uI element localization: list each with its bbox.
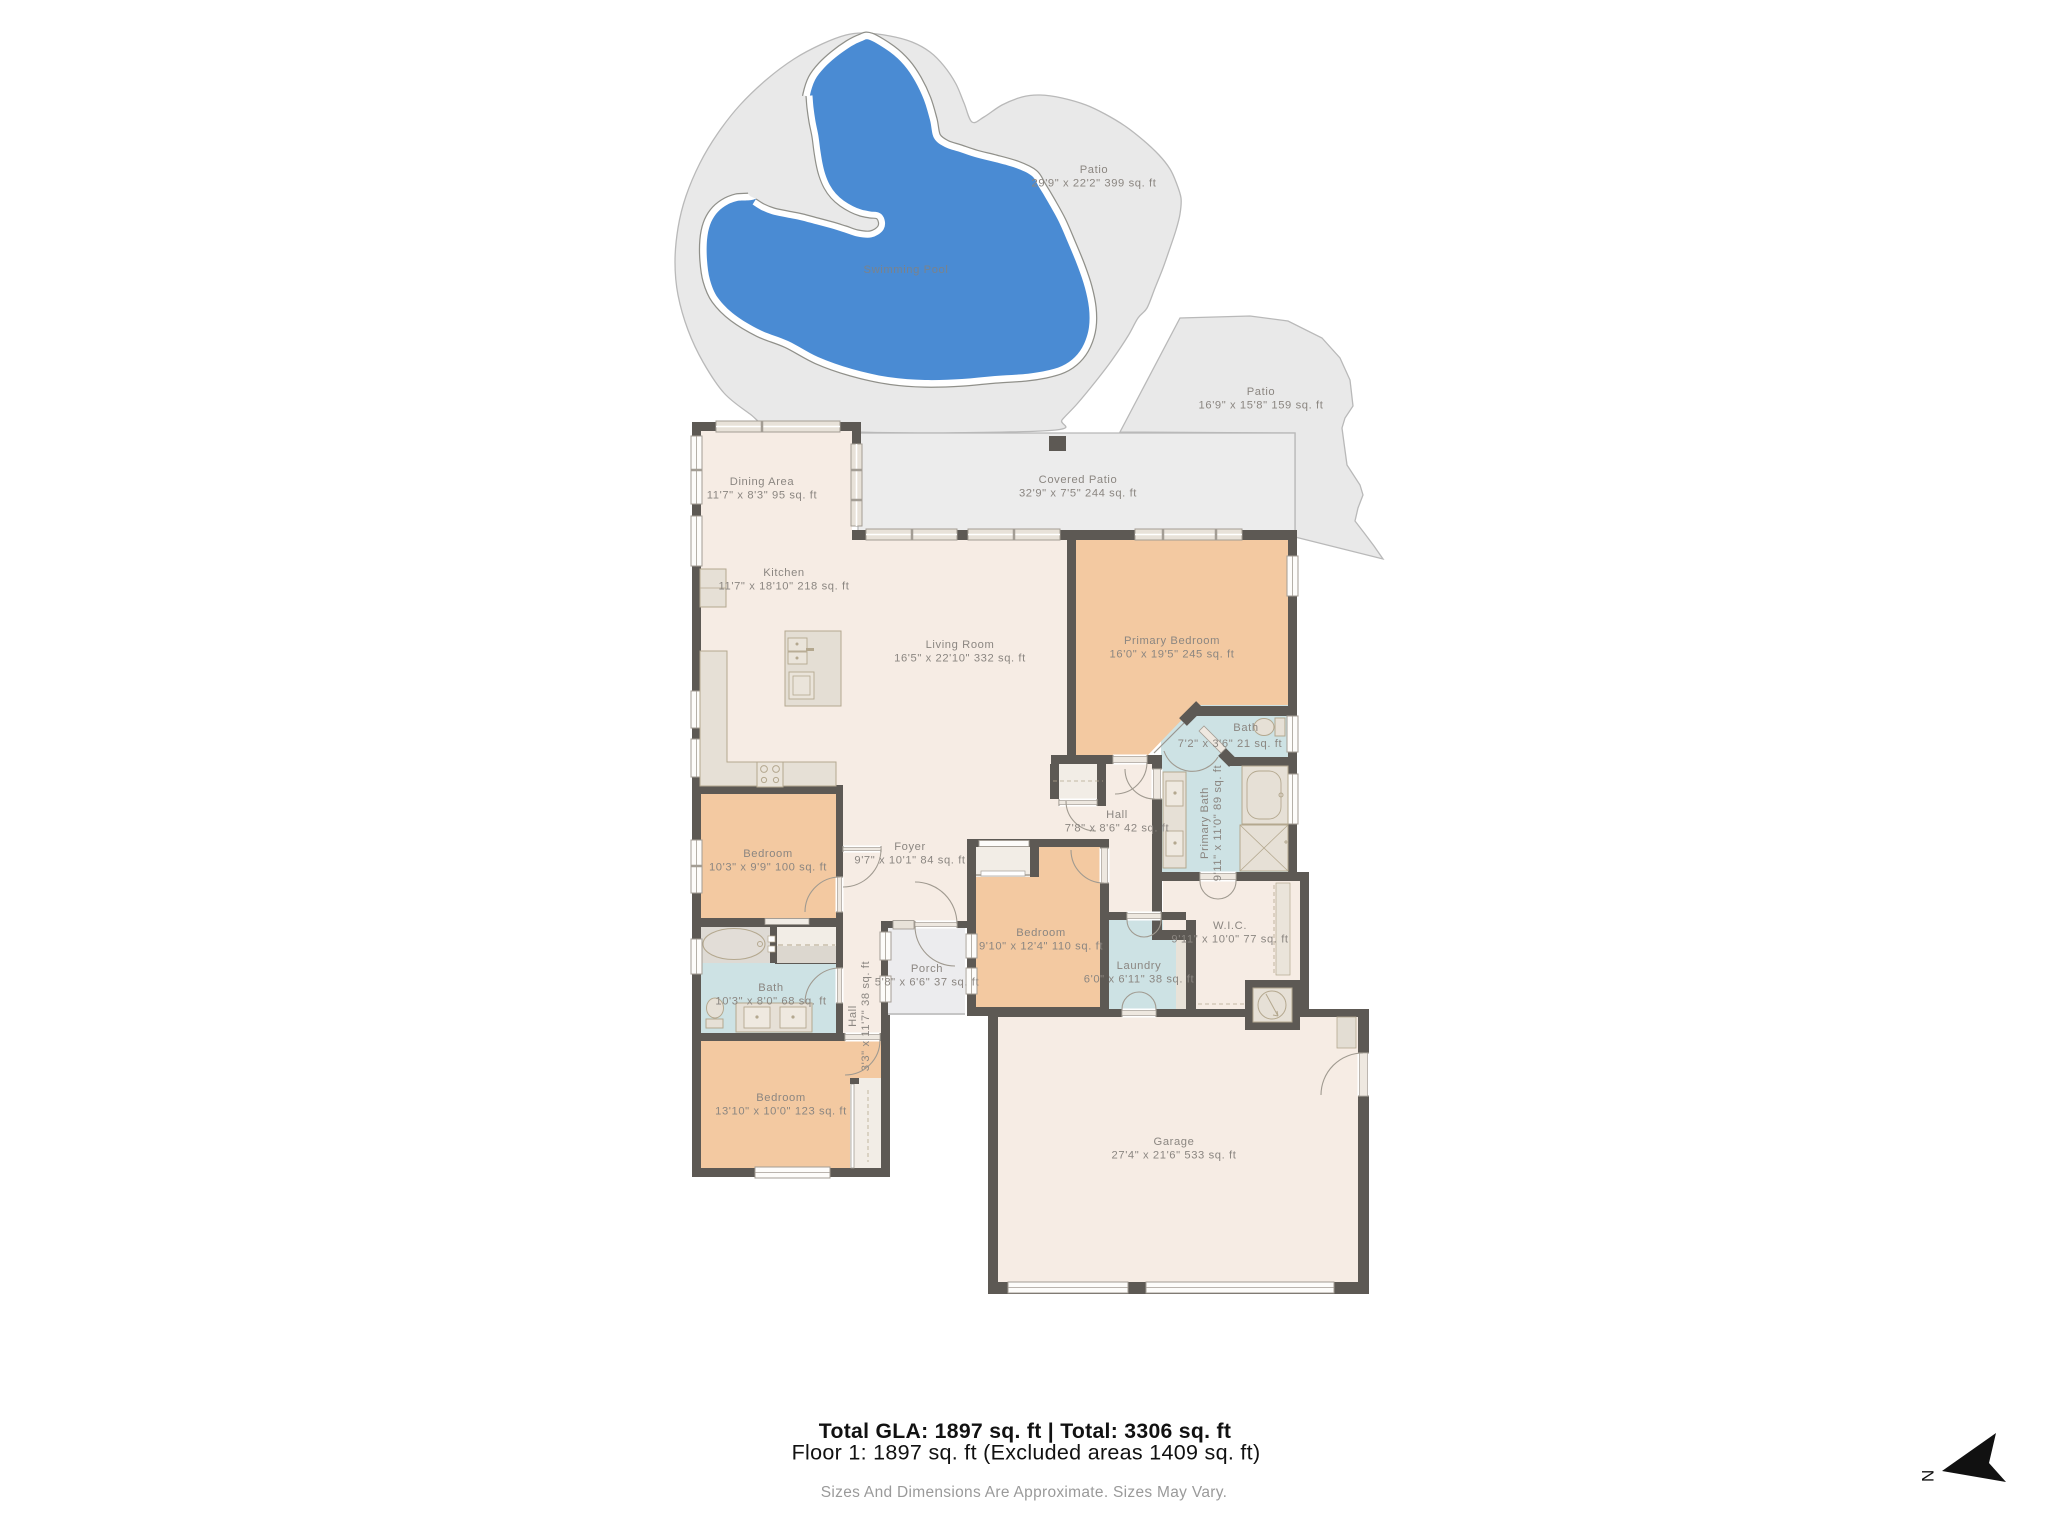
svg-text:Bath: Bath xyxy=(758,982,783,994)
svg-text:Dining Area: Dining Area xyxy=(730,476,795,488)
svg-text:Bedroom: Bedroom xyxy=(1016,927,1066,939)
svg-text:7'8" x 8'6" 42 sq. ft: 7'8" x 8'6" 42 sq. ft xyxy=(1065,823,1170,835)
svg-text:Patio: Patio xyxy=(1247,386,1276,398)
svg-text:27'4" x 21'6" 533 sq. ft: 27'4" x 21'6" 533 sq. ft xyxy=(1112,1150,1237,1162)
svg-text:13'10" x 10'0" 123 sq. ft: 13'10" x 10'0" 123 sq. ft xyxy=(715,1106,847,1118)
svg-text:10'3" x 8'0" 68 sq. ft: 10'3" x 8'0" 68 sq. ft xyxy=(715,996,827,1008)
svg-text:Swimming Pool: Swimming Pool xyxy=(864,264,949,276)
svg-text:11'7" x 18'10" 218 sq. ft: 11'7" x 18'10" 218 sq. ft xyxy=(719,581,850,593)
svg-text:32'9" x 7'5" 244 sq. ft: 32'9" x 7'5" 244 sq. ft xyxy=(1019,488,1137,500)
svg-text:29'9" x 22'2" 399 sq. ft: 29'9" x 22'2" 399 sq. ft xyxy=(1032,178,1157,190)
svg-text:Living Room: Living Room xyxy=(926,639,995,651)
svg-text:Covered Patio: Covered Patio xyxy=(1039,474,1118,486)
svg-text:16'5" x 22'10" 332 sq. ft: 16'5" x 22'10" 332 sq. ft xyxy=(894,653,1026,665)
svg-text:Hall: Hall xyxy=(1106,809,1128,821)
svg-text:9'10" x 12'4" 110 sq. ft: 9'10" x 12'4" 110 sq. ft xyxy=(979,941,1103,953)
svg-text:Hall: Hall xyxy=(847,1005,859,1027)
svg-text:Kitchen: Kitchen xyxy=(763,567,805,579)
svg-text:Primary Bedroom: Primary Bedroom xyxy=(1124,635,1220,647)
svg-text:16'0" x 19'5" 245 sq. ft: 16'0" x 19'5" 245 sq. ft xyxy=(1110,649,1235,661)
svg-text:Patio: Patio xyxy=(1080,164,1109,176)
svg-text:9'7" x 10'1" 84 sq. ft: 9'7" x 10'1" 84 sq. ft xyxy=(854,855,966,867)
svg-text:5'8" x 6'6" 37 sq. ft: 5'8" x 6'6" 37 sq. ft xyxy=(875,977,980,989)
svg-text:Sizes And Dimensions Are Appro: Sizes And Dimensions Are Approximate. Si… xyxy=(821,1484,1227,1501)
svg-text:10'3" x 9'9" 100 sq. ft: 10'3" x 9'9" 100 sq. ft xyxy=(709,862,827,874)
svg-text:W.I.C.: W.I.C. xyxy=(1213,920,1247,932)
svg-text:16'9" x 15'8" 159 sq. ft: 16'9" x 15'8" 159 sq. ft xyxy=(1199,400,1324,412)
svg-text:Floor 1: 1897 sq. ft (Excluded: Floor 1: 1897 sq. ft (Excluded areas 140… xyxy=(792,1441,1261,1465)
svg-text:9'11" x 11'0" 89 sq. ft: 9'11" x 11'0" 89 sq. ft xyxy=(1212,765,1224,882)
svg-text:9'11" x 10'0" 77 sq. ft: 9'11" x 10'0" 77 sq. ft xyxy=(1171,934,1289,946)
svg-text:Porch: Porch xyxy=(911,963,943,975)
svg-text:Bedroom: Bedroom xyxy=(756,1092,806,1104)
svg-text:Primary Bath: Primary Bath xyxy=(1199,787,1211,859)
svg-text:Foyer: Foyer xyxy=(894,841,926,853)
svg-text:Laundry: Laundry xyxy=(1117,960,1162,972)
svg-text:Bath: Bath xyxy=(1233,722,1258,734)
svg-text:11'7" x 8'3" 95 sq. ft: 11'7" x 8'3" 95 sq. ft xyxy=(707,490,818,502)
svg-text:7'2" x 3'6" 21 sq. ft: 7'2" x 3'6" 21 sq. ft xyxy=(1178,738,1283,750)
svg-text:6'0" x 6'11" 38 sq. ft: 6'0" x 6'11" 38 sq. ft xyxy=(1084,974,1195,986)
svg-text:3'3" x 11'7" 38 sq. ft: 3'3" x 11'7" 38 sq. ft xyxy=(860,961,872,1072)
svg-text:N: N xyxy=(1918,1470,1937,1483)
svg-text:Garage: Garage xyxy=(1154,1136,1195,1148)
svg-text:Bedroom: Bedroom xyxy=(743,848,793,860)
